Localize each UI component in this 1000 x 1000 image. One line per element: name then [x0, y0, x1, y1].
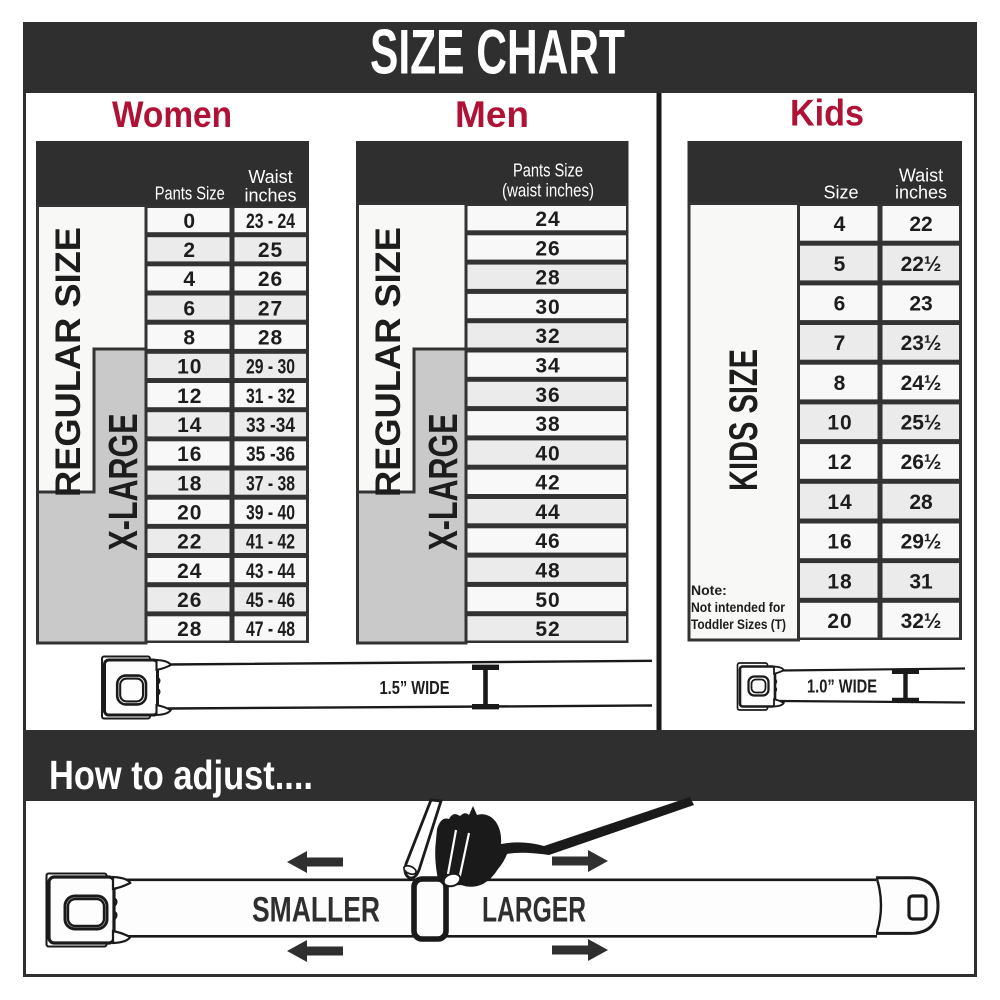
- svg-text:Kids: Kids: [790, 93, 864, 134]
- svg-text:26: 26: [258, 268, 283, 291]
- svg-text:(waist inches): (waist inches): [502, 181, 594, 201]
- svg-text:31: 31: [909, 570, 933, 593]
- svg-text:44: 44: [535, 501, 560, 524]
- svg-text:Men: Men: [455, 94, 529, 135]
- svg-text:28: 28: [177, 618, 202, 641]
- svg-text:36: 36: [535, 384, 560, 407]
- svg-text:X-LARGE: X-LARGE: [420, 414, 466, 551]
- svg-text:38: 38: [535, 413, 560, 436]
- svg-text:26: 26: [177, 589, 202, 612]
- svg-text:Women: Women: [112, 94, 232, 135]
- svg-text:28: 28: [909, 491, 933, 514]
- svg-text:26: 26: [535, 237, 560, 260]
- svg-text:32: 32: [535, 325, 560, 348]
- svg-text:inches: inches: [895, 183, 947, 203]
- svg-text:37 - 38: 37 - 38: [246, 472, 295, 495]
- svg-text:23: 23: [909, 293, 932, 316]
- svg-text:10: 10: [827, 412, 852, 435]
- svg-text:0: 0: [183, 210, 196, 233]
- svg-text:24: 24: [177, 560, 202, 583]
- svg-text:2: 2: [183, 239, 196, 262]
- svg-text:18: 18: [177, 472, 202, 495]
- svg-text:Pants Size: Pants Size: [155, 184, 225, 204]
- svg-text:25: 25: [258, 239, 283, 262]
- svg-text:Pants Size: Pants Size: [513, 161, 583, 181]
- svg-text:Size: Size: [823, 183, 858, 203]
- svg-text:REGULAR SIZE: REGULAR SIZE: [369, 227, 408, 497]
- svg-text:43 - 44: 43 - 44: [246, 560, 295, 583]
- svg-text:20: 20: [827, 610, 852, 633]
- svg-text:23½: 23½: [901, 332, 942, 355]
- svg-text:LARGER: LARGER: [482, 891, 586, 930]
- svg-text:33 -34: 33 -34: [246, 414, 295, 437]
- svg-text:4: 4: [834, 213, 847, 236]
- svg-text:42: 42: [535, 472, 560, 495]
- svg-text:14: 14: [827, 491, 852, 514]
- svg-text:KIDS SIZE: KIDS SIZE: [722, 349, 766, 491]
- svg-text:SIZE CHART: SIZE CHART: [370, 18, 625, 88]
- svg-text:6: 6: [183, 297, 196, 320]
- svg-text:24½: 24½: [901, 372, 942, 395]
- svg-text:14: 14: [177, 414, 202, 437]
- svg-text:1.0” WIDE: 1.0” WIDE: [807, 677, 877, 697]
- svg-text:24: 24: [535, 208, 560, 231]
- svg-text:10: 10: [177, 356, 202, 379]
- svg-text:7: 7: [834, 332, 847, 355]
- svg-text:39 - 40: 39 - 40: [246, 502, 295, 525]
- svg-text:12: 12: [177, 385, 202, 408]
- svg-text:4: 4: [183, 268, 196, 291]
- svg-text:1.5” WIDE: 1.5” WIDE: [380, 678, 450, 698]
- svg-text:28: 28: [258, 327, 283, 350]
- svg-text:20: 20: [177, 502, 202, 525]
- svg-text:16: 16: [177, 443, 202, 466]
- svg-text:34: 34: [535, 354, 560, 377]
- svg-text:Not intended for: Not intended for: [691, 599, 785, 615]
- svg-text:16: 16: [827, 531, 852, 554]
- svg-text:28: 28: [535, 267, 560, 290]
- svg-text:31 - 32: 31 - 32: [246, 385, 295, 408]
- svg-text:29 - 30: 29 - 30: [246, 356, 295, 379]
- svg-text:5: 5: [834, 253, 847, 276]
- svg-text:SMALLER: SMALLER: [252, 891, 380, 930]
- svg-text:8: 8: [834, 372, 847, 395]
- svg-text:8: 8: [183, 327, 196, 350]
- svg-text:32½: 32½: [901, 610, 942, 633]
- svg-text:40: 40: [535, 442, 560, 465]
- svg-text:50: 50: [535, 589, 560, 612]
- svg-text:41 - 42: 41 - 42: [246, 531, 295, 554]
- svg-text:48: 48: [535, 560, 560, 583]
- svg-text:35 -36: 35 -36: [246, 443, 295, 466]
- svg-text:Waist: Waist: [248, 167, 292, 187]
- svg-text:22½: 22½: [901, 253, 942, 276]
- svg-text:27: 27: [258, 297, 283, 320]
- svg-text:29½: 29½: [901, 531, 942, 554]
- svg-text:How to adjust....: How to adjust....: [49, 752, 313, 798]
- svg-text:45 - 46: 45 - 46: [246, 589, 295, 612]
- svg-text:22: 22: [177, 531, 202, 554]
- svg-text:18: 18: [827, 570, 852, 593]
- svg-text:26½: 26½: [901, 451, 942, 474]
- svg-text:Note:: Note:: [691, 582, 727, 598]
- svg-text:6: 6: [834, 293, 847, 316]
- svg-text:30: 30: [535, 296, 560, 319]
- svg-text:25½: 25½: [901, 412, 942, 435]
- svg-text:inches: inches: [244, 186, 296, 206]
- svg-text:Toddler Sizes (T): Toddler Sizes (T): [691, 616, 786, 632]
- svg-text:12: 12: [827, 451, 852, 474]
- svg-text:REGULAR SIZE: REGULAR SIZE: [49, 227, 88, 497]
- svg-text:52: 52: [535, 618, 560, 641]
- svg-text:23 - 24: 23 - 24: [246, 210, 295, 233]
- svg-text:22: 22: [909, 213, 932, 236]
- svg-text:X-LARGE: X-LARGE: [100, 414, 146, 551]
- svg-text:46: 46: [535, 530, 560, 553]
- svg-text:47 - 48: 47 - 48: [246, 618, 295, 641]
